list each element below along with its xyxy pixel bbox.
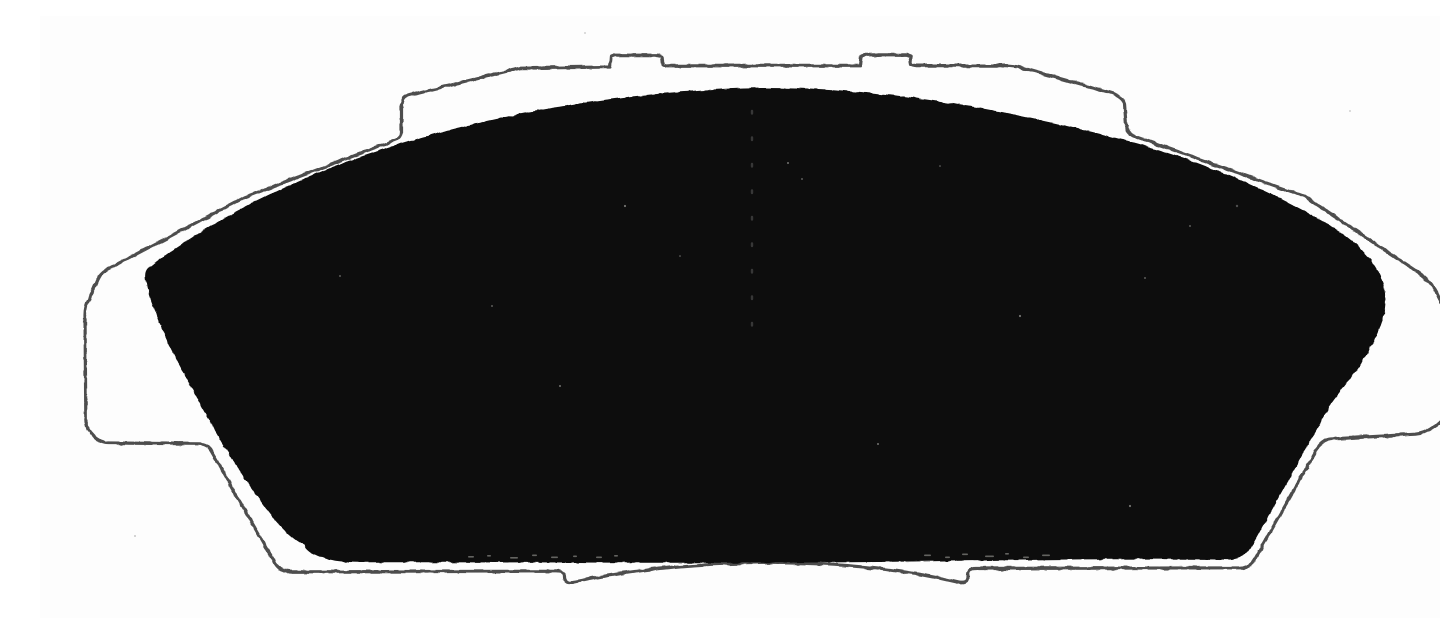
brake-pad-drawing xyxy=(40,16,1440,618)
brake-pad-scan xyxy=(40,16,1440,618)
